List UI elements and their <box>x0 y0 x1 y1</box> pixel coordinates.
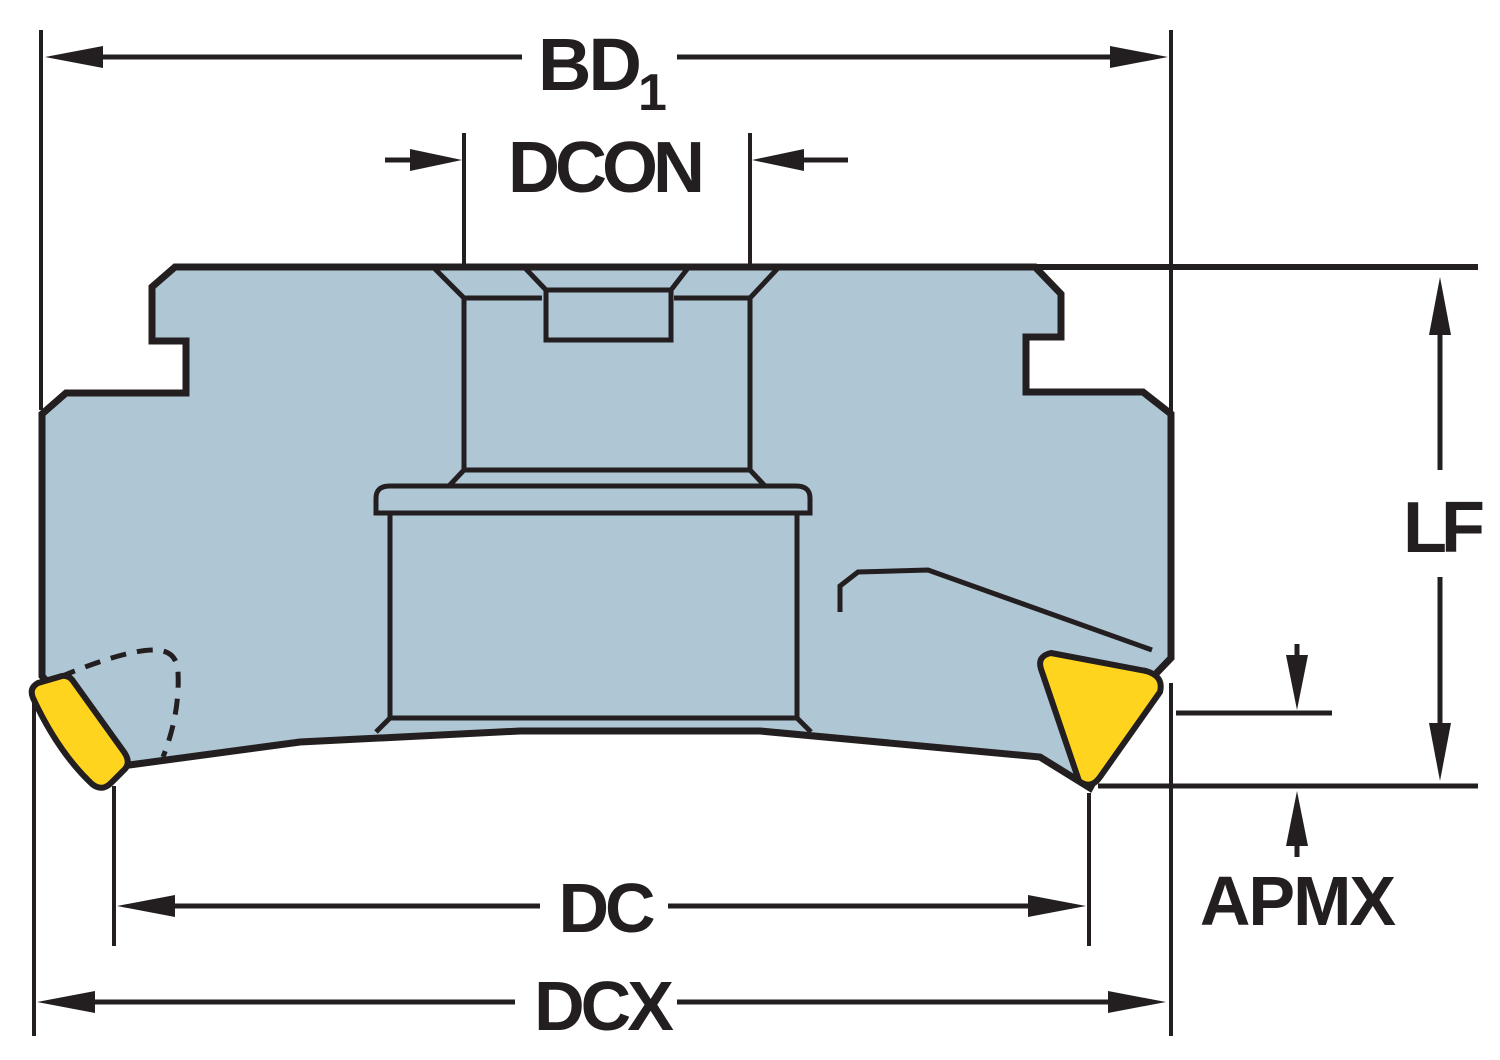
label-dcx: DCX <box>534 967 674 1045</box>
technical-drawing-svg: BD 1 DCON LF APMX DC DCX <box>0 0 1500 1060</box>
label-apmx: APMX <box>1200 862 1397 940</box>
label-bd1: BD <box>538 23 639 106</box>
dcx-arrow-right <box>1108 991 1166 1013</box>
apmx-arrow-down <box>1286 655 1308 710</box>
dcon-arrow-right <box>752 149 804 171</box>
apmx-arrow-up <box>1286 791 1308 846</box>
lf-arrow-top <box>1429 277 1451 335</box>
bd1-arrow-right <box>1110 46 1168 68</box>
dc-arrow-left <box>117 895 175 917</box>
dc-arrow-right <box>1028 895 1086 917</box>
label-lf: LF <box>1403 488 1483 568</box>
label-dcon: DCON <box>508 128 701 208</box>
bd1-arrow-left <box>45 46 103 68</box>
drawing-root: BD 1 DCON LF APMX DC DCX <box>32 23 1483 1045</box>
dcon-arrow-left <box>410 149 462 171</box>
dimension-apmx <box>1286 644 1308 857</box>
drawing-canvas: BD 1 DCON LF APMX DC DCX <box>0 0 1500 1060</box>
dcx-arrow-left <box>37 991 95 1013</box>
hub-flange <box>376 486 810 513</box>
label-dc: DC <box>558 869 654 947</box>
lf-arrow-bottom <box>1429 723 1451 781</box>
cutter-body-outline <box>42 267 1171 788</box>
label-bd1-subscript: 1 <box>638 64 667 122</box>
